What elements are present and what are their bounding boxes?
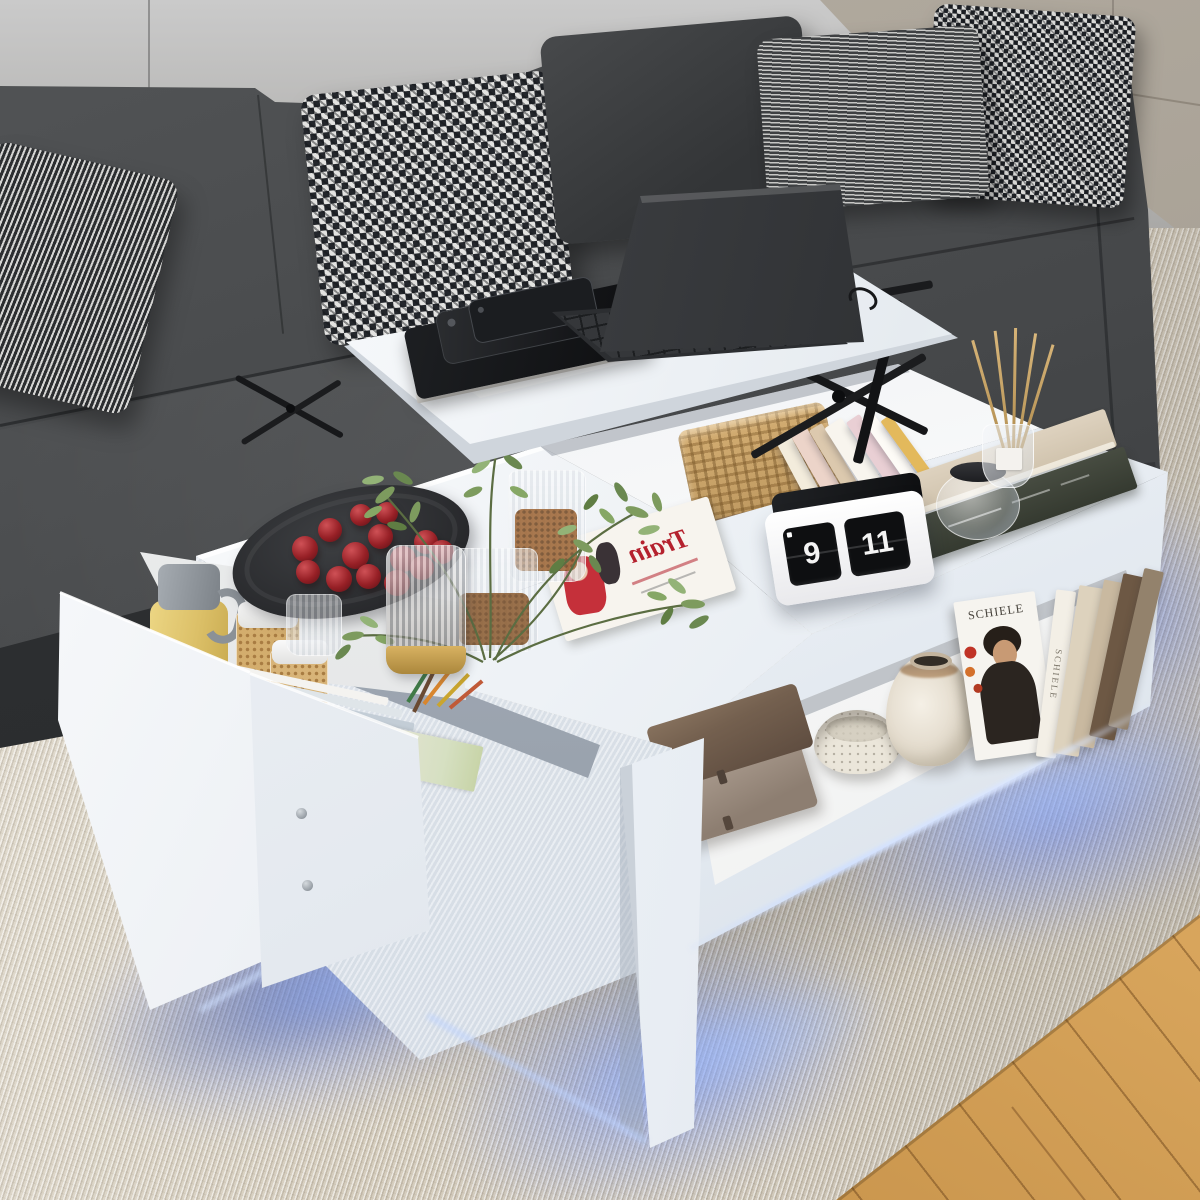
diffuser-label — [996, 448, 1022, 470]
vase-gold-base — [386, 646, 466, 674]
drawer-screw — [302, 880, 313, 891]
schiele-artwork-flower — [964, 646, 978, 660]
schiele-artwork-flower — [964, 666, 975, 677]
phone-camera-dot — [447, 318, 456, 327]
wall-corner-line — [148, 0, 150, 98]
schiele-artwork-jacket — [976, 658, 1043, 745]
drawer-screw — [296, 808, 307, 819]
living-room-product-photo: SCHIELE SCHIELE Train — [0, 0, 1200, 1200]
flip-clock: 9 11 — [761, 470, 956, 655]
bowl-mouth — [826, 716, 888, 742]
clock-am-indicator — [787, 532, 793, 538]
phone-camera-dot — [477, 306, 484, 313]
lift-joint — [286, 404, 295, 413]
pillow-stripe-right — [756, 24, 989, 211]
lift-joint — [832, 390, 845, 403]
vase-mouth — [910, 652, 952, 670]
schiele-cover-title: SCHIELE — [954, 599, 1037, 625]
